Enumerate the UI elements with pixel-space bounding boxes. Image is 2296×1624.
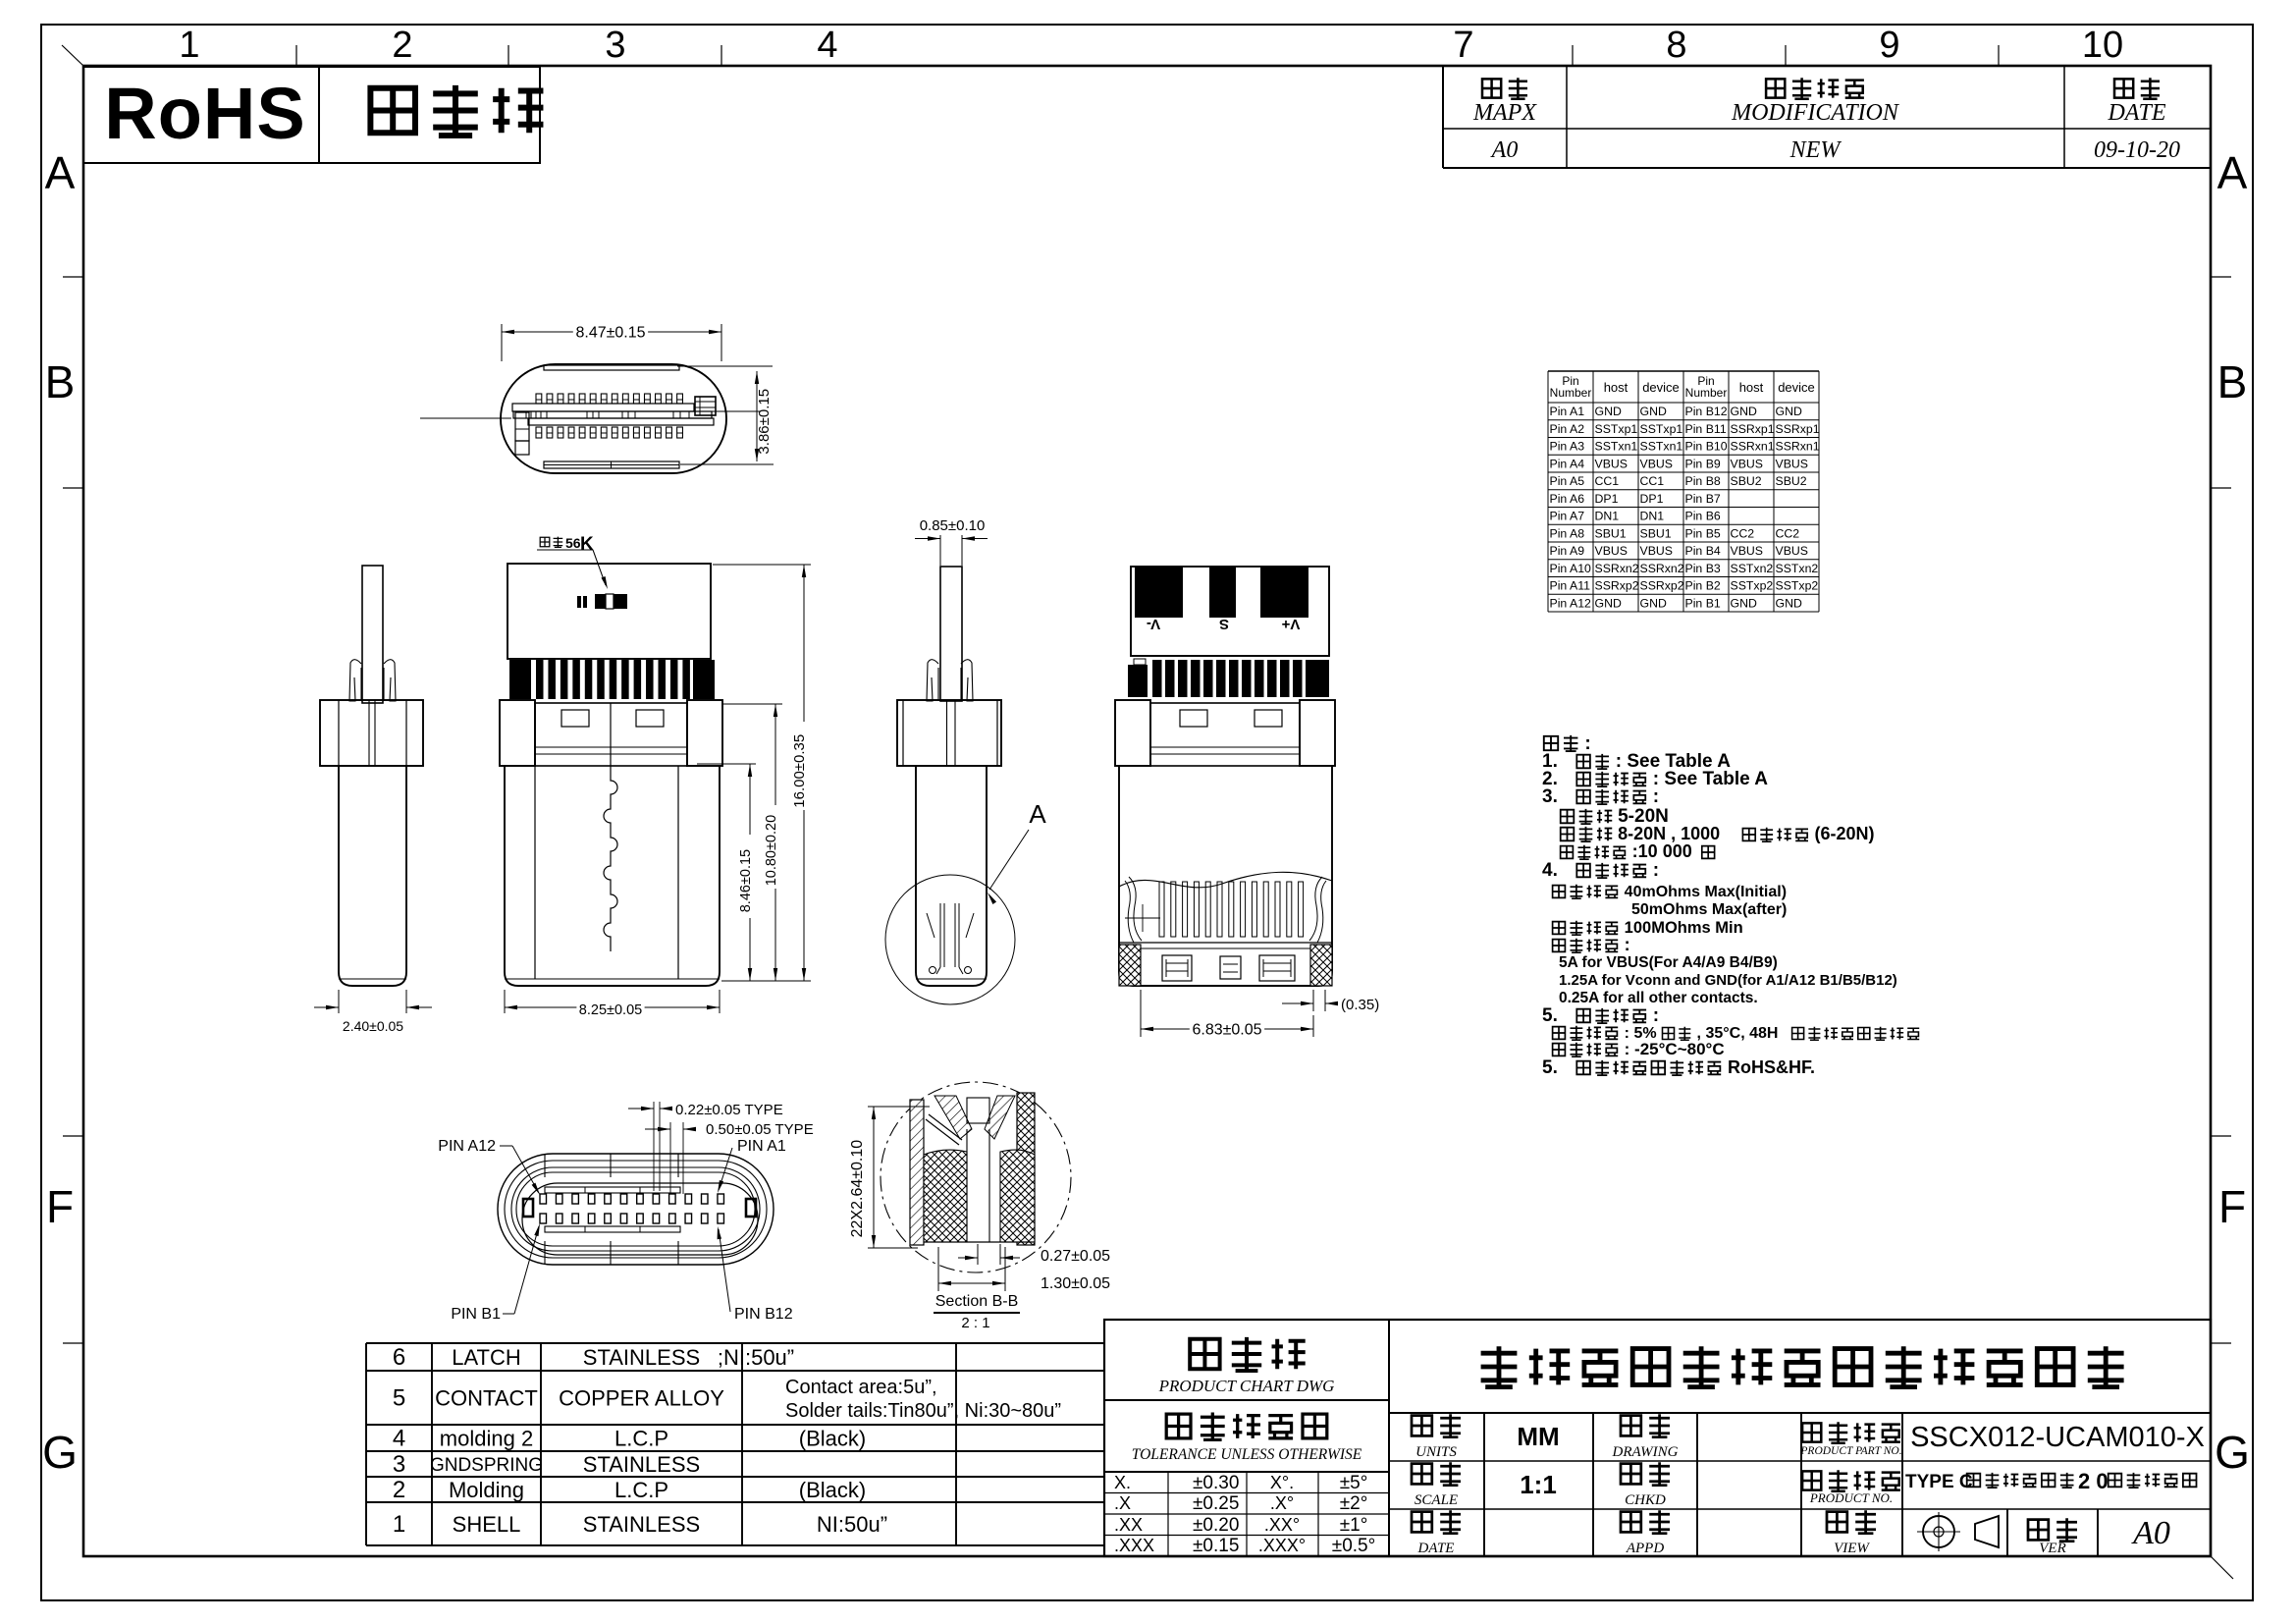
- svg-text:RoHS: RoHS: [104, 73, 305, 154]
- svg-text:±0.20: ±0.20: [1193, 1515, 1239, 1536]
- svg-text:G: G: [42, 1427, 78, 1478]
- svg-text:SSRxp1: SSRxp1: [1776, 422, 1820, 436]
- svg-text:8-20N , 1000: 8-20N , 1000: [1618, 824, 1720, 843]
- svg-text:SSTxp1: SSTxp1: [1640, 422, 1683, 436]
- svg-text:3.: 3.: [1542, 786, 1558, 807]
- svg-text:B: B: [45, 356, 76, 407]
- svg-text:RoHS&HF.: RoHS&HF.: [1728, 1057, 1815, 1077]
- svg-text:NI:50u”: NI:50u”: [817, 1512, 887, 1537]
- svg-text:SSTxn2: SSTxn2: [1731, 562, 1774, 575]
- svg-text:molding 2: molding 2: [440, 1427, 533, 1451]
- svg-text:CC2: CC2: [1731, 526, 1755, 540]
- svg-text:2 : 1: 2 : 1: [961, 1315, 989, 1331]
- svg-text:GND: GND: [1595, 596, 1622, 610]
- svg-text:Pin A9: Pin A9: [1550, 544, 1585, 558]
- svg-text:Pin A5: Pin A5: [1550, 474, 1585, 488]
- svg-text:0.50±0.05 TYPE: 0.50±0.05 TYPE: [706, 1121, 814, 1138]
- svg-text:1: 1: [179, 25, 199, 66]
- svg-text:SBU1: SBU1: [1595, 526, 1627, 540]
- svg-text:X.: X.: [1114, 1473, 1131, 1492]
- svg-text:LATCH: LATCH: [452, 1345, 521, 1370]
- svg-text:6: 6: [393, 1344, 405, 1371]
- svg-text:Pin B6: Pin B6: [1685, 510, 1721, 523]
- svg-text:Molding: Molding: [449, 1478, 524, 1502]
- svg-text:7: 7: [1453, 25, 1473, 66]
- svg-text:VBUS: VBUS: [1776, 457, 1809, 470]
- svg-text:A: A: [2217, 147, 2248, 198]
- svg-text:A: A: [1029, 799, 1046, 829]
- svg-text:TYPE C: TYPE C: [1905, 1472, 1973, 1492]
- svg-text:SBU1: SBU1: [1640, 526, 1672, 540]
- svg-text:CONTACT: CONTACT: [435, 1386, 538, 1411]
- svg-text:STAINLESS: STAINLESS: [583, 1345, 700, 1370]
- svg-text:DP1: DP1: [1595, 492, 1619, 506]
- svg-text:VER: VER: [2039, 1541, 2066, 1556]
- svg-text:1.25A for Vconn and GND(for A1: 1.25A for Vconn and GND(for A1/A12 B1/B5…: [1559, 972, 1897, 989]
- svg-text:6.83±0.05: 6.83±0.05: [1192, 1022, 1261, 1039]
- svg-text:PRODUCT NO.: PRODUCT NO.: [1809, 1490, 1893, 1505]
- svg-text:PRODUCT CHART DWG: PRODUCT CHART DWG: [1158, 1377, 1335, 1395]
- svg-text:Pin A1: Pin A1: [1550, 405, 1585, 418]
- svg-text:VBUS: VBUS: [1731, 457, 1764, 470]
- svg-text:±0.15: ±0.15: [1193, 1536, 1239, 1556]
- svg-text:Pin B1: Pin B1: [1685, 596, 1721, 610]
- svg-text::10 000: :10 000: [1632, 841, 1692, 861]
- svg-text:1:1: 1:1: [1520, 1470, 1557, 1499]
- svg-text:SSRxn1: SSRxn1: [1776, 440, 1820, 454]
- svg-text:DRAWING: DRAWING: [1612, 1444, 1679, 1460]
- svg-text:DATE: DATE: [2107, 100, 2165, 126]
- svg-text:8.46±0.15: 8.46±0.15: [738, 849, 754, 912]
- svg-text:2.40±0.05: 2.40±0.05: [343, 1018, 403, 1034]
- svg-text:1.30±0.05: 1.30±0.05: [1041, 1275, 1110, 1292]
- svg-text:2: 2: [392, 25, 412, 66]
- svg-text:Number: Number: [1550, 386, 1592, 400]
- svg-text:STAINLESS: STAINLESS: [583, 1452, 700, 1477]
- svg-text:SSRxn2: SSRxn2: [1595, 562, 1639, 575]
- svg-text:.XXX°: .XXX°: [1258, 1536, 1306, 1555]
- svg-text:Pin B3: Pin B3: [1685, 562, 1721, 575]
- svg-text:Pin A11: Pin A11: [1550, 579, 1591, 593]
- svg-text:SSRxn2: SSRxn2: [1640, 562, 1684, 575]
- svg-text:CC2: CC2: [1776, 526, 1800, 540]
- svg-text::: :: [1653, 786, 1659, 807]
- svg-text:Pin A7: Pin A7: [1550, 510, 1585, 523]
- svg-text:8.25±0.05: 8.25±0.05: [579, 1002, 642, 1018]
- svg-text:APPD: APPD: [1626, 1541, 1664, 1556]
- svg-text:A0: A0: [2131, 1515, 2170, 1551]
- svg-text:±5°: ±5°: [1340, 1473, 1368, 1493]
- svg-text:PRODUCT PART NO.: PRODUCT PART NO.: [1799, 1445, 1901, 1457]
- svg-text:0.85±0.10: 0.85±0.10: [920, 517, 986, 534]
- svg-text:;NI:50u”: ;NI:50u”: [718, 1345, 794, 1370]
- svg-text:MM: MM: [1517, 1422, 1559, 1451]
- svg-text:3: 3: [605, 25, 625, 66]
- svg-text:SHELL: SHELL: [453, 1512, 521, 1537]
- svg-text:host: host: [1739, 380, 1764, 395]
- svg-text:GND: GND: [1776, 405, 1802, 418]
- svg-text:3: 3: [393, 1451, 405, 1478]
- svg-text:TOLERANCE UNLESS OTHERWISE: TOLERANCE UNLESS OTHERWISE: [1132, 1446, 1362, 1463]
- svg-text:0.22±0.05 TYPE: 0.22±0.05 TYPE: [675, 1102, 783, 1118]
- svg-text:10: 10: [2082, 25, 2123, 66]
- svg-text:100MOhms Min: 100MOhms Min: [1625, 919, 1743, 937]
- svg-text:SSRxp2: SSRxp2: [1640, 579, 1684, 593]
- svg-text:GND: GND: [1776, 596, 1802, 610]
- svg-text:CHKD: CHKD: [1625, 1492, 1666, 1508]
- svg-text:K: K: [580, 534, 594, 555]
- svg-text:Pin B7: Pin B7: [1685, 492, 1721, 506]
- svg-text:SBU2: SBU2: [1731, 474, 1762, 488]
- svg-text:.X: .X: [1114, 1493, 1131, 1513]
- svg-text:CC1: CC1: [1640, 474, 1665, 488]
- svg-text:F: F: [46, 1181, 74, 1232]
- svg-text:SSRxp2: SSRxp2: [1595, 579, 1639, 593]
- svg-text:A: A: [45, 147, 76, 198]
- svg-text:NEW: NEW: [1789, 137, 1842, 163]
- svg-text:SSTxp2: SSTxp2: [1731, 579, 1774, 593]
- svg-text:(Black): (Black): [799, 1427, 866, 1451]
- svg-text:±0.30: ±0.30: [1193, 1473, 1239, 1493]
- svg-text:1: 1: [393, 1511, 405, 1538]
- svg-text:: See Table A: : See Table A: [1653, 769, 1768, 789]
- svg-text:GND: GND: [1595, 405, 1622, 418]
- svg-text:PIN A1: PIN A1: [737, 1138, 786, 1155]
- svg-text:DN1: DN1: [1640, 510, 1665, 523]
- svg-text:GND: GND: [1731, 596, 1757, 610]
- svg-text:50mOhms Max(after): 50mOhms Max(after): [1631, 901, 1787, 918]
- svg-text::: :: [1584, 733, 1590, 754]
- svg-text:X°.: X°.: [1270, 1473, 1294, 1492]
- svg-text:DN1: DN1: [1595, 510, 1620, 523]
- svg-text:Pin A8: Pin A8: [1550, 526, 1585, 540]
- svg-text:L.C.P: L.C.P: [614, 1427, 668, 1451]
- svg-text:5A for VBUS(For A4/A9 B4/B9): 5A for VBUS(For A4/A9 B4/B9): [1559, 954, 1778, 971]
- svg-text:G: G: [2215, 1427, 2250, 1478]
- svg-text:.XXX: .XXX: [1114, 1536, 1154, 1555]
- svg-text:Pin B10: Pin B10: [1685, 440, 1728, 454]
- svg-text:9: 9: [1879, 25, 1899, 66]
- svg-text:GND: GND: [1731, 405, 1757, 418]
- svg-text:CC1: CC1: [1595, 474, 1620, 488]
- svg-text:V+: V+: [1281, 616, 1300, 632]
- svg-text:MAPX: MAPX: [1472, 100, 1537, 126]
- svg-text:B: B: [2217, 356, 2248, 407]
- svg-text:SSCX012-UCAM010-X: SSCX012-UCAM010-X: [1910, 1422, 2205, 1453]
- svg-text:PIN A12: PIN A12: [438, 1138, 496, 1155]
- svg-text:5.: 5.: [1542, 1057, 1558, 1078]
- svg-text:(6-20N): (6-20N): [1814, 824, 1874, 843]
- svg-text:VBUS: VBUS: [1640, 457, 1674, 470]
- svg-text:Pin B5: Pin B5: [1685, 526, 1721, 540]
- svg-text:16.00±0.35: 16.00±0.35: [791, 734, 808, 808]
- svg-text:(Black): (Black): [799, 1478, 866, 1502]
- svg-text:DP1: DP1: [1640, 492, 1664, 506]
- svg-text:Section B-B: Section B-B: [935, 1293, 1018, 1310]
- svg-text:56: 56: [565, 535, 581, 551]
- svg-text:(0.35): (0.35): [1341, 997, 1379, 1013]
- svg-text:VBUS: VBUS: [1640, 544, 1674, 558]
- svg-text:VBUS: VBUS: [1776, 544, 1809, 558]
- svg-text:SSRxp1: SSRxp1: [1731, 422, 1775, 436]
- svg-text:UNITS: UNITS: [1415, 1444, 1457, 1460]
- svg-text:Solder tails:Tin80u”, Ni:30~: Solder tails:Tin80u”, Ni:30~80u”: [785, 1400, 1061, 1422]
- svg-text:Pin A6: Pin A6: [1550, 492, 1585, 506]
- svg-text:Pin B9: Pin B9: [1685, 457, 1721, 470]
- svg-text:40mOhms Max(Initial): 40mOhms Max(Initial): [1625, 884, 1787, 900]
- svg-text:SSTxn1: SSTxn1: [1595, 440, 1638, 454]
- svg-text:3.86±0.15: 3.86±0.15: [756, 389, 773, 455]
- svg-text:09-10-20: 09-10-20: [2094, 137, 2180, 163]
- svg-text:STAINLESS: STAINLESS: [583, 1512, 700, 1537]
- svg-text:±0.5°: ±0.5°: [1332, 1536, 1375, 1556]
- svg-text:Pin A3: Pin A3: [1550, 440, 1585, 454]
- svg-text:5: 5: [393, 1385, 405, 1412]
- svg-text:5.: 5.: [1542, 1005, 1558, 1026]
- svg-text:2: 2: [393, 1477, 405, 1503]
- svg-text:Pin A4: Pin A4: [1550, 457, 1585, 470]
- svg-text:VBUS: VBUS: [1595, 544, 1629, 558]
- svg-text:SBU2: SBU2: [1776, 474, 1807, 488]
- svg-text:MODIFICATION: MODIFICATION: [1731, 100, 1900, 126]
- svg-text:device: device: [1778, 380, 1815, 395]
- svg-text:Pin A10: Pin A10: [1550, 562, 1592, 575]
- svg-text:SSTxn2: SSTxn2: [1776, 562, 1819, 575]
- svg-text:VBUS: VBUS: [1731, 544, 1764, 558]
- svg-text:VIEW: VIEW: [1834, 1541, 1870, 1556]
- svg-text:GNDSPRING: GNDSPRING: [430, 1455, 543, 1476]
- svg-text:A0: A0: [1490, 137, 1519, 163]
- svg-text:S: S: [1219, 616, 1229, 632]
- svg-text:±2°: ±2°: [1340, 1493, 1368, 1514]
- svg-text:: -25°C~80°C: : -25°C~80°C: [1625, 1040, 1725, 1058]
- svg-text::: :: [1653, 860, 1659, 881]
- svg-text:.XX°: .XX°: [1264, 1515, 1300, 1535]
- svg-text:PIN B12: PIN B12: [734, 1306, 793, 1323]
- svg-text:0.25A for all other contacts.: 0.25A for all other contacts.: [1559, 990, 1758, 1006]
- svg-text:4: 4: [817, 25, 837, 66]
- svg-text:SSTxp1: SSTxp1: [1595, 422, 1638, 436]
- svg-text:4.: 4.: [1542, 860, 1558, 881]
- svg-text:22X2.64±0.10: 22X2.64±0.10: [849, 1140, 866, 1238]
- svg-text:Pin B4: Pin B4: [1685, 544, 1721, 558]
- svg-text:Pin A12: Pin A12: [1550, 596, 1592, 610]
- svg-text:Pin B12: Pin B12: [1685, 405, 1728, 418]
- svg-text:L.C.P: L.C.P: [614, 1478, 668, 1502]
- svg-text:SCALE: SCALE: [1415, 1492, 1458, 1508]
- svg-text:Pin B2: Pin B2: [1685, 579, 1721, 593]
- svg-text:8.47±0.15: 8.47±0.15: [575, 325, 645, 342]
- svg-text:Pin B11: Pin B11: [1685, 422, 1727, 436]
- svg-text:.XX: .XX: [1114, 1515, 1143, 1535]
- svg-text:Contact area:5u”,: Contact area:5u”,: [785, 1377, 937, 1398]
- svg-text:SSTxn1: SSTxn1: [1640, 440, 1683, 454]
- svg-text:device: device: [1642, 380, 1680, 395]
- svg-text:8: 8: [1666, 25, 1686, 66]
- svg-text:V-: V-: [1147, 616, 1160, 632]
- svg-text:0.27±0.05: 0.27±0.05: [1041, 1248, 1110, 1265]
- svg-text:Pin A2: Pin A2: [1550, 422, 1585, 436]
- svg-text:SSRxn1: SSRxn1: [1731, 440, 1775, 454]
- svg-text:COPPER ALLOY: COPPER ALLOY: [559, 1386, 724, 1411]
- svg-text::: :: [1625, 935, 1630, 954]
- svg-text:Number: Number: [1685, 386, 1728, 400]
- svg-text:DATE: DATE: [1417, 1541, 1455, 1556]
- svg-text:GND: GND: [1640, 405, 1667, 418]
- svg-text:host: host: [1604, 380, 1629, 395]
- svg-text:GND: GND: [1640, 596, 1667, 610]
- svg-text:±1°: ±1°: [1340, 1515, 1368, 1536]
- svg-text:Pin B8: Pin B8: [1685, 474, 1721, 488]
- svg-text:2 0: 2 0: [2078, 1469, 2109, 1493]
- svg-text:10.80±0.20: 10.80±0.20: [764, 815, 779, 886]
- svg-text:PIN B1: PIN B1: [451, 1306, 501, 1323]
- svg-text:SSTxp2: SSTxp2: [1776, 579, 1819, 593]
- svg-text::: :: [1653, 1005, 1659, 1026]
- svg-text:4: 4: [393, 1426, 405, 1452]
- svg-text:F: F: [2218, 1181, 2246, 1232]
- svg-text:.X°: .X°: [1270, 1493, 1294, 1513]
- svg-text:VBUS: VBUS: [1595, 457, 1629, 470]
- svg-text:±0.25: ±0.25: [1193, 1493, 1239, 1514]
